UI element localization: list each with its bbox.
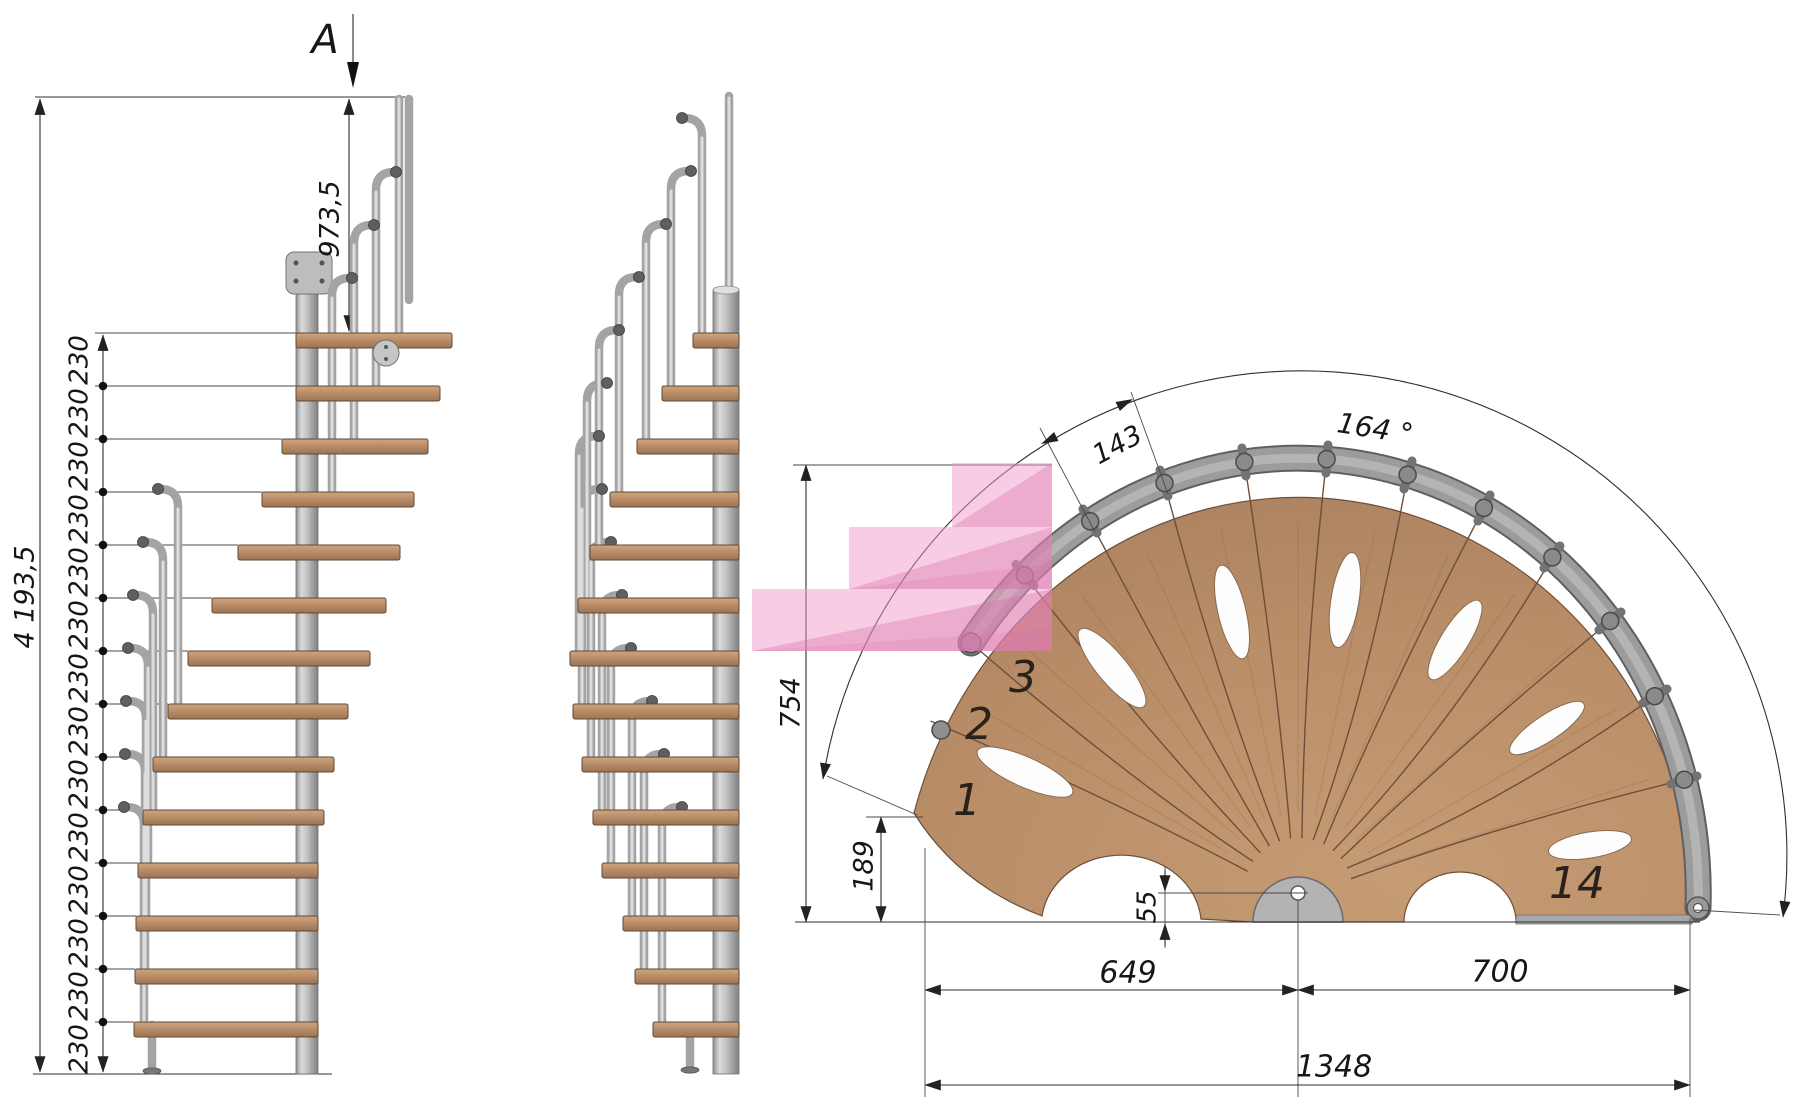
center-pole	[713, 290, 739, 1074]
drawing-canvas: A 4 193,5 973,5 230 230 230 230 230 230 …	[0, 0, 1800, 1113]
section-marker-label: A	[308, 17, 338, 63]
pole-cap	[713, 286, 739, 294]
tread-depth-dimension: 143	[1087, 419, 1147, 471]
riser-label: 230	[65, 971, 95, 1021]
riser-label: 230	[65, 441, 95, 491]
riser-label: 230	[65, 865, 95, 915]
left-span-dimension: 649	[1099, 956, 1156, 991]
riser-label: 230	[65, 918, 95, 968]
first-step-offset-dimension: 189	[849, 840, 880, 892]
middle-elevation-view	[570, 96, 739, 1074]
step-number-2: 2	[965, 699, 993, 750]
section-arrow	[347, 14, 359, 88]
pink-highlight-overlay	[752, 463, 1052, 651]
left-elevation-view	[119, 99, 453, 1074]
rotation-angle-label: 164 °	[1335, 406, 1416, 451]
pole-offset-dimension: 55	[1133, 890, 1163, 923]
right-span-dimension: 700	[1471, 955, 1528, 990]
riser-label: 230	[65, 547, 95, 597]
center-pole	[296, 290, 318, 1074]
riser-label: 230	[65, 759, 95, 809]
base-plate	[1516, 915, 1692, 924]
riser-label: 230	[65, 706, 95, 756]
total-height-dimension: 4 193,5	[10, 545, 41, 648]
step-number-3: 3	[1009, 652, 1037, 703]
overall-depth-dimension: 754	[776, 677, 807, 729]
step-number-14: 14	[1549, 858, 1605, 909]
riser-label: 230	[65, 600, 95, 650]
riser-label: 230	[65, 1024, 95, 1074]
riser-label: 230	[65, 388, 95, 438]
riser-label: 230	[65, 494, 95, 544]
staircase-technical-drawing: A 4 193,5 973,5 230 230 230 230 230 230 …	[0, 0, 1800, 1113]
total-span-dimension: 1348	[1296, 1050, 1372, 1085]
riser-label: 230	[65, 812, 95, 862]
baluster-flange	[373, 340, 399, 366]
riser-label: 230	[65, 653, 95, 703]
riser-label: 230	[65, 335, 95, 385]
riser-dimension-labels: 230 230 230 230 230 230 230 230 230 230 …	[65, 335, 95, 1074]
step-number-1: 1	[953, 775, 981, 826]
landing-height-dimension: 973,5	[315, 180, 346, 257]
